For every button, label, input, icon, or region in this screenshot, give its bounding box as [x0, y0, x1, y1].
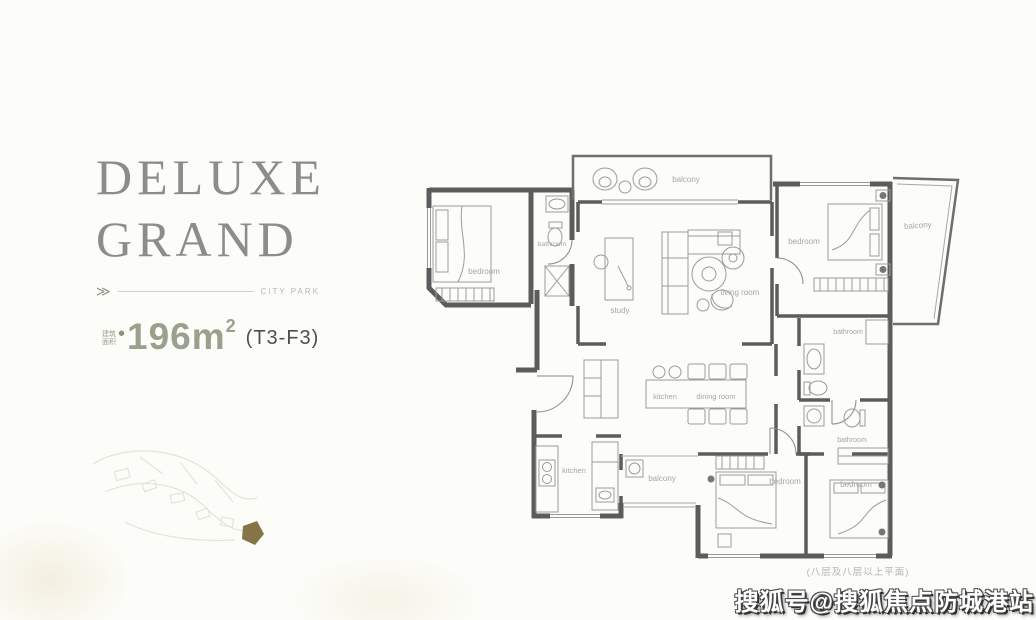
tagline: CITY PARK — [261, 287, 321, 296]
area-spec: 建筑 面积 • 196m 2 (T3-F3) — [102, 318, 319, 356]
label-study: study — [610, 306, 629, 315]
bullet-icon: • — [118, 324, 125, 344]
area-label: 建筑 面积 — [102, 331, 116, 347]
label-bedroom-bottom-right: bedroom — [840, 480, 872, 489]
area-label-line2: 面积 — [102, 339, 116, 346]
label-bathroom-top-left: bathroom — [538, 241, 567, 248]
title-line-1: DELUXE — [96, 146, 326, 208]
label-balcony-right: balcony — [904, 220, 932, 231]
site-roads — [93, 451, 257, 541]
brand-title: DELUXE GRAND — [96, 146, 326, 270]
divider-line — [118, 291, 254, 292]
chevron-icon: ≫ — [96, 284, 111, 298]
floorplan-poster: DELUXE GRAND ≫ CITY PARK 建筑 面积 • 196m 2 … — [0, 0, 1036, 620]
area-label-line1: 建筑 — [102, 331, 116, 338]
bed-top-right — [814, 190, 890, 291]
bed-bottom-right — [830, 448, 888, 538]
watermark: 搜狐号@搜狐焦点防城港站 — [735, 582, 1034, 617]
title-line-2: GRAND — [96, 208, 326, 270]
label-bedroom-top-right: bedroom — [788, 237, 820, 246]
living-room-furniture — [662, 230, 744, 314]
label-bathroom-right-lower: bathroom — [837, 437, 867, 444]
area-superscript: 2 — [226, 317, 236, 335]
label-bedroom-top-left: bedroom — [468, 267, 500, 276]
label-kitchen: kitchen — [562, 466, 586, 475]
highlighted-building — [242, 521, 264, 545]
label-dining-room: dining room — [696, 392, 735, 401]
exterior-walls — [429, 182, 892, 558]
area-value: 196m — [127, 318, 226, 356]
unit-type-code: (T3-F3) — [246, 327, 320, 350]
door-swings — [537, 240, 856, 454]
balcony-bottom-furniture — [626, 460, 643, 477]
balcony-walls — [573, 156, 958, 324]
site-location-sketch — [85, 422, 285, 577]
furniture — [433, 168, 890, 547]
floor-note: (八层及八层以上平面) — [807, 567, 910, 578]
label-balcony-top: balcony — [672, 175, 700, 184]
label-kitchen-island: kitchen — [653, 392, 677, 401]
bed-bottom-left — [716, 456, 776, 547]
balcony-top-furniture — [593, 168, 657, 193]
label-balcony-bottom: balcony — [648, 474, 676, 483]
label-bedroom-bottom-left: bedroom — [769, 477, 801, 486]
study-furniture — [594, 238, 633, 300]
interior-walls — [534, 184, 890, 556]
bed-top-left — [433, 206, 494, 301]
floorplan-drawing: balcony bedroom bathroom study living ro… — [400, 138, 972, 590]
brand-divider: ≫ CITY PARK — [96, 284, 320, 298]
label-living-room: living room — [721, 288, 760, 297]
kitchen-furniture — [536, 442, 618, 512]
label-bathroom-right-upper: bathroom — [833, 329, 863, 336]
